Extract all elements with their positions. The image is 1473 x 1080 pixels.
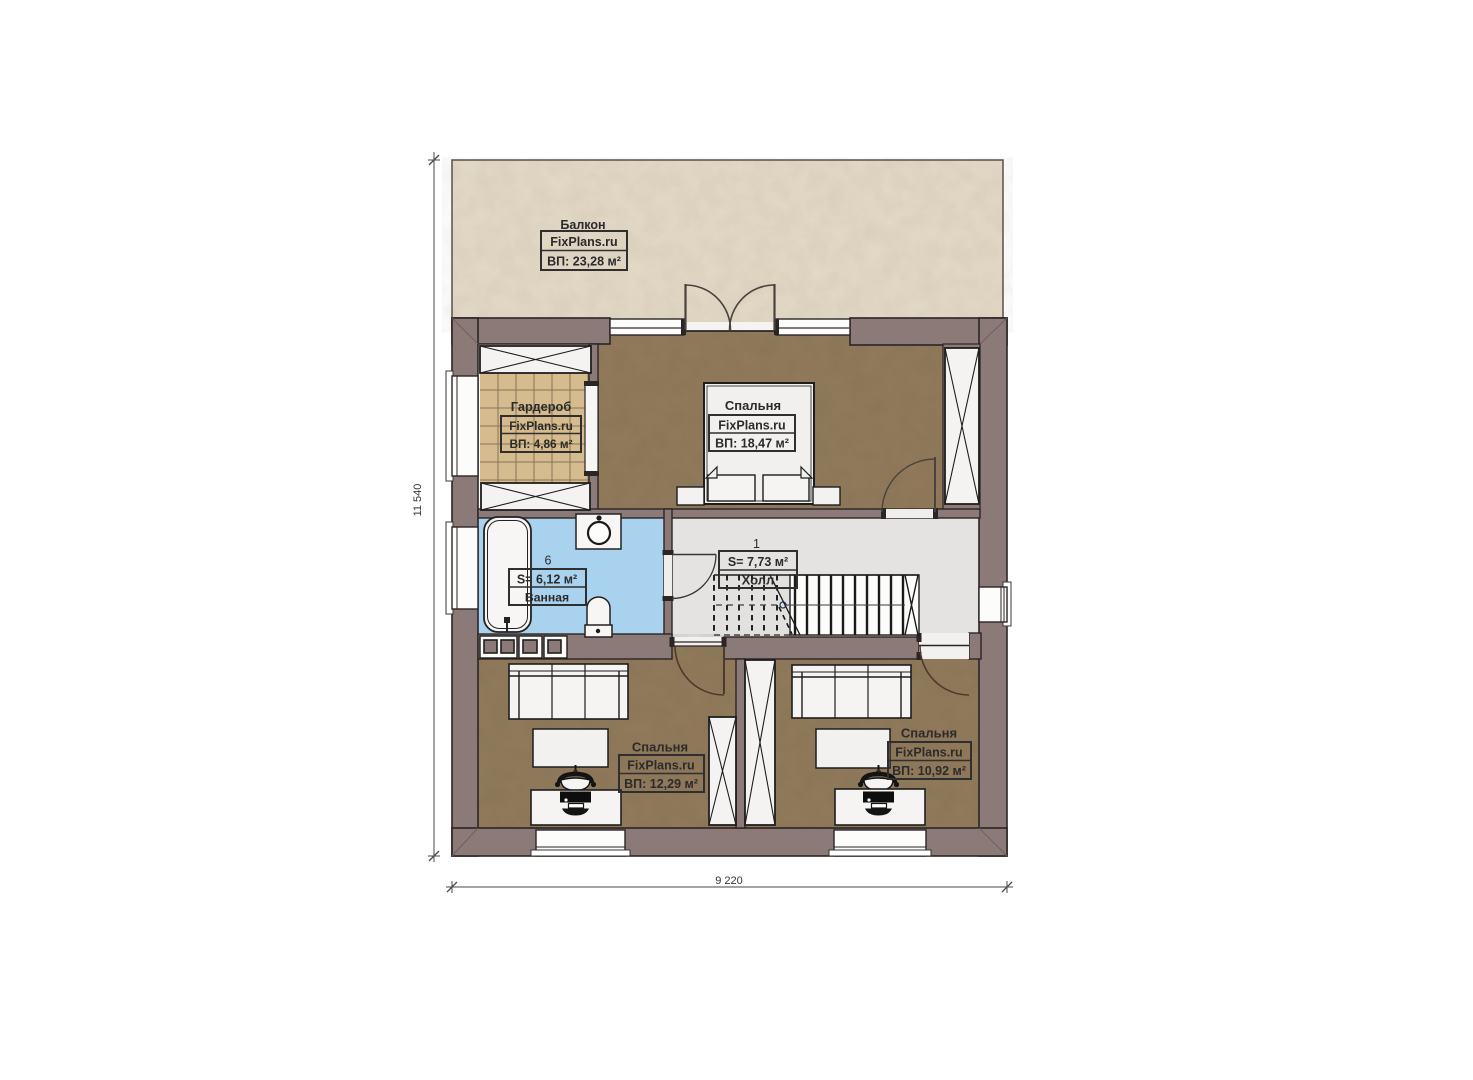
svg-text:FixPlans.ru: FixPlans.ru [895,746,962,760]
svg-text:S= 6,12 м²: S= 6,12 м² [517,573,577,587]
svg-text:Спальня: Спальня [901,726,957,741]
svg-text:FixPlans.ru: FixPlans.ru [550,235,617,249]
svg-text:ВП: 12,29 м²: ВП: 12,29 м² [624,777,698,791]
svg-text:1: 1 [753,537,760,551]
svg-text:Холл: Холл [742,573,775,588]
svg-text:FixPlans.ru: FixPlans.ru [627,759,694,773]
svg-text:9 220: 9 220 [715,875,743,887]
svg-text:ВП: 18,47 м²: ВП: 18,47 м² [715,437,789,451]
svg-text:ВП: 23,28 м²: ВП: 23,28 м² [547,255,621,269]
svg-text:ВП: 4,86 м²: ВП: 4,86 м² [509,437,572,451]
svg-text:ВП: 10,92 м²: ВП: 10,92 м² [892,764,966,778]
svg-text:6: 6 [545,554,552,568]
svg-text:Балкон: Балкон [560,218,605,232]
svg-text:Гардероб: Гардероб [511,399,572,414]
svg-text:S= 7,73 м²: S= 7,73 м² [728,555,788,569]
svg-text:FixPlans.ru: FixPlans.ru [718,419,785,433]
svg-text:Ванная: Ванная [525,591,569,605]
svg-text:11 540: 11 540 [412,484,424,517]
svg-text:FixPlans.ru: FixPlans.ru [509,419,573,433]
svg-text:Спальня: Спальня [632,740,688,755]
svg-text:Спальня: Спальня [725,398,781,413]
